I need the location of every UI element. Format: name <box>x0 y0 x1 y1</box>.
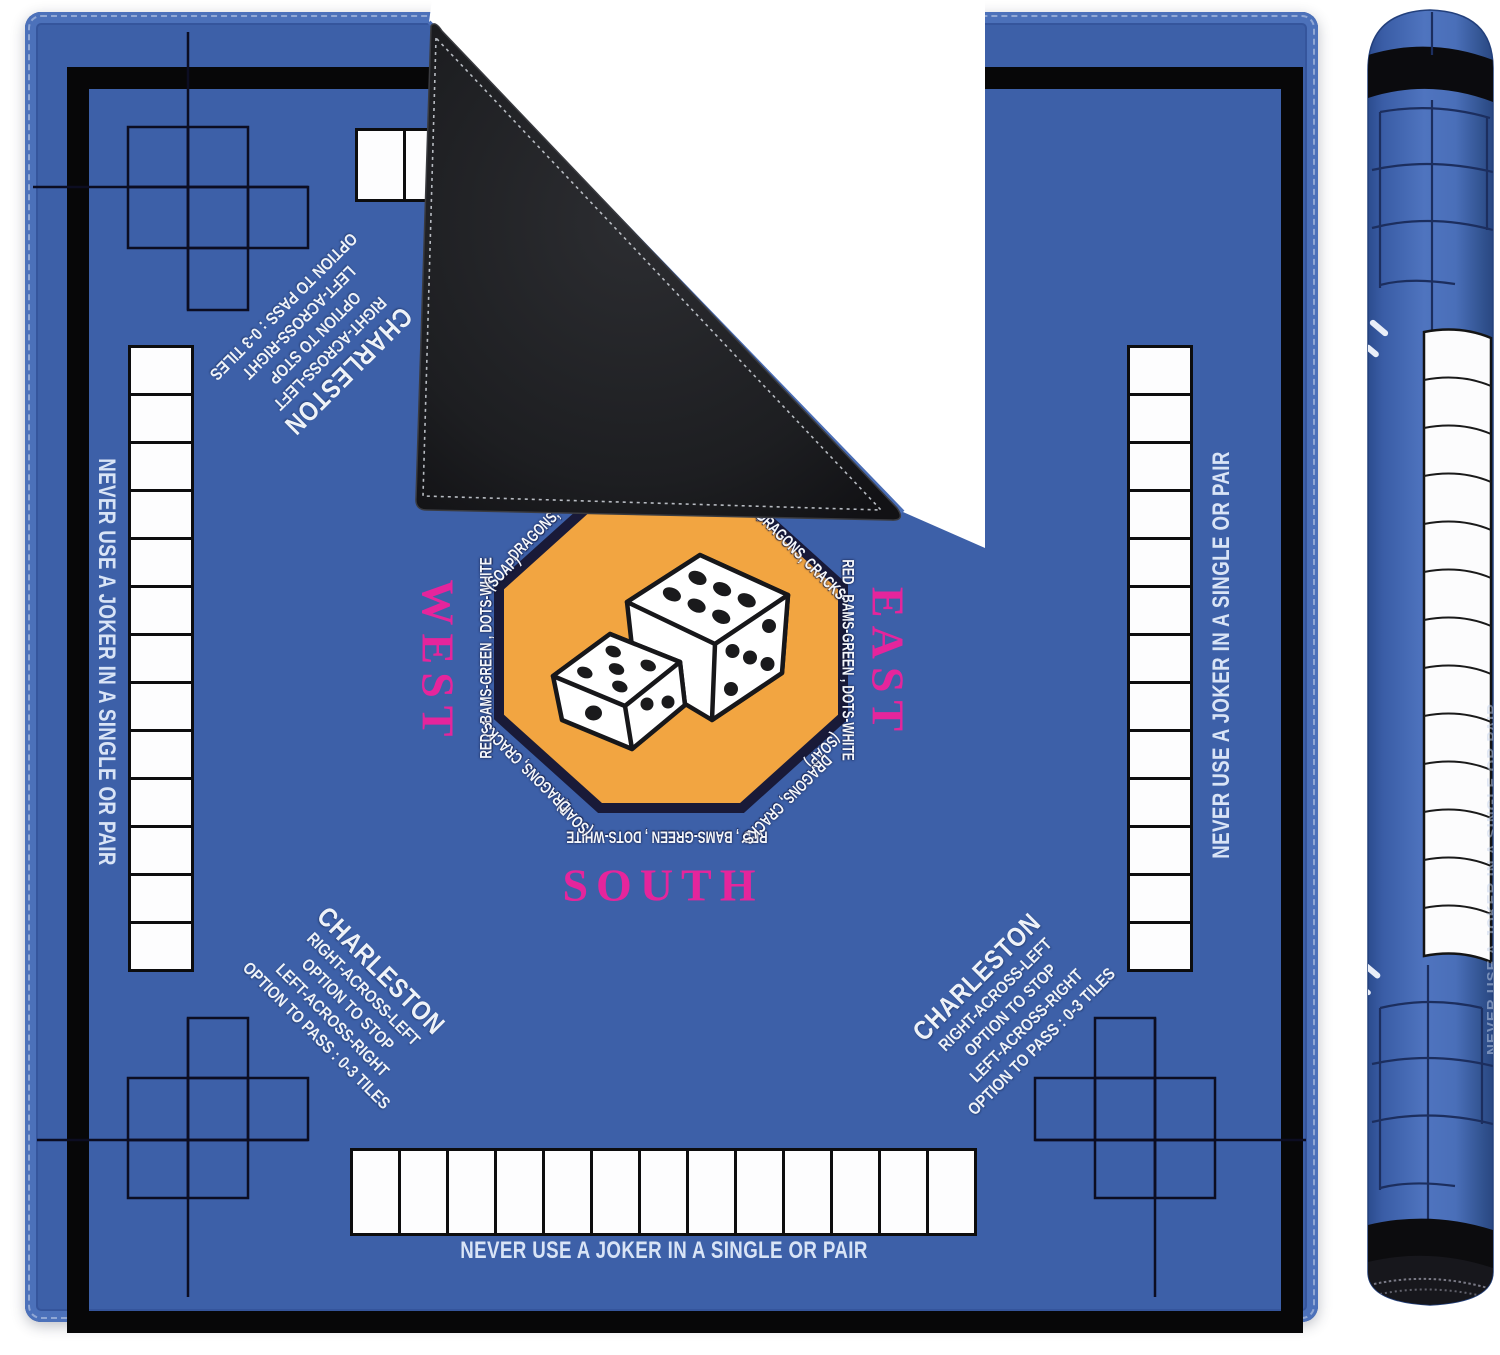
tile-slot <box>542 1148 593 1236</box>
tile-slot <box>1127 777 1193 828</box>
mahjong-mat: NEVER USE A JOKER IN A SINGLE OR PAIR NE… <box>25 12 1318 1322</box>
tile-slot <box>128 729 194 780</box>
tile-slot <box>128 681 194 732</box>
tile-slot <box>734 1148 785 1236</box>
tile-slot <box>128 873 194 924</box>
tile-slot <box>1127 585 1193 636</box>
tile-slot <box>686 1148 737 1236</box>
tile-slot <box>830 1148 881 1236</box>
tile-slot <box>1127 825 1193 876</box>
tile-rack-south <box>350 1148 977 1236</box>
octagon-suits-west: RED , BAMS-GREEN , DOTS-WHITE <box>478 518 497 798</box>
tile-slot <box>446 1148 497 1236</box>
corner-grid-bottom-right <box>1035 1018 1306 1297</box>
product-photo-scene: NEVER USE A JOKER IN A SINGLE OR PAIR NE… <box>0 0 1500 1355</box>
tile-slot <box>128 825 194 876</box>
tile-slot <box>1127 729 1193 780</box>
tile-slot <box>878 1148 929 1236</box>
tile-slot <box>926 1148 977 1236</box>
tile-slot <box>782 1148 833 1236</box>
corner-grid-bottom-left <box>37 1018 308 1297</box>
tile-slot <box>1127 681 1193 732</box>
direction-label-east: EAST <box>862 587 915 739</box>
tile-slot <box>590 1148 641 1236</box>
rolled-mat: NEVER USE A JOKER IN A SINGLE OR PAIR <box>1350 0 1500 1355</box>
tile-slot <box>494 1148 545 1236</box>
tile-slot <box>398 1148 449 1236</box>
roll-tile-column <box>1424 330 1491 962</box>
tile-slot <box>1127 921 1193 972</box>
tile-slot <box>1127 873 1193 924</box>
tile-slot <box>638 1148 689 1236</box>
direction-label-west: WEST <box>412 580 465 745</box>
joker-warning-bottom: NEVER USE A JOKER IN A SINGLE OR PAIR <box>403 1237 926 1265</box>
tile-slot <box>128 633 194 684</box>
tile-slot <box>1127 633 1193 684</box>
direction-label-south: SOUTH <box>562 859 763 912</box>
folded-corner <box>25 0 1365 552</box>
tile-slot <box>350 1148 401 1236</box>
roll-joker-warning: NEVER USE A JOKER IN A SINGLE OR PAIR <box>1484 703 1500 1055</box>
tile-slot <box>128 921 194 972</box>
tile-slot <box>128 777 194 828</box>
tile-slot <box>128 585 194 636</box>
